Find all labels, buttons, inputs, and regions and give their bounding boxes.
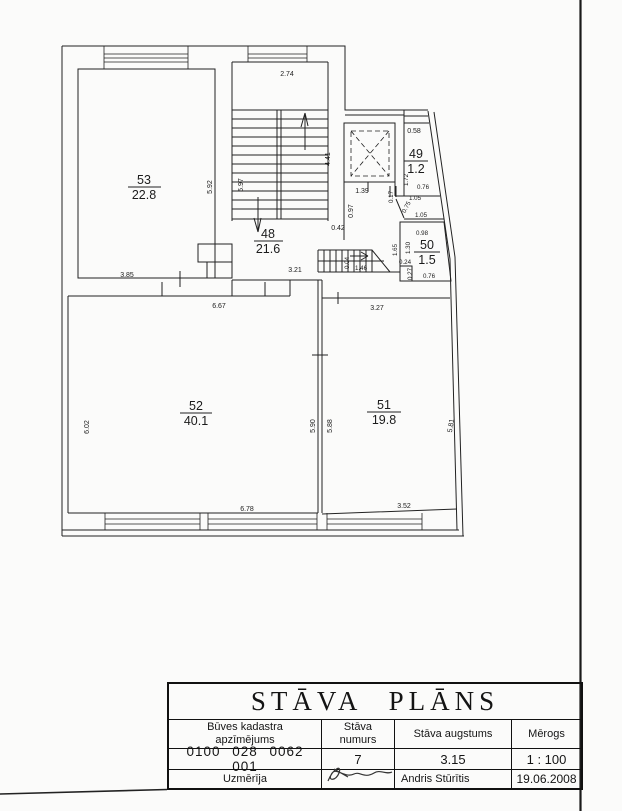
dim-room52-bottom: 6.78 xyxy=(240,506,254,513)
dim-lobby-105b: 1.05 xyxy=(415,212,428,219)
dim-room51-left: 5.88 xyxy=(327,419,334,433)
dim-048-042: 0.42 xyxy=(331,225,345,232)
signature-cell xyxy=(321,769,394,788)
dim-room49-width: 0.58 xyxy=(407,128,421,135)
bottom-windows xyxy=(105,513,422,530)
dim-room49-076: 0.76 xyxy=(417,184,430,191)
room-48-area: 21.6 xyxy=(256,242,280,256)
room-48-number: 48 xyxy=(261,227,275,241)
room-50-number: 50 xyxy=(420,238,434,252)
dim-elevator-width: 1.39 xyxy=(355,188,369,195)
survey-date: 19.06.2008 xyxy=(511,769,581,788)
dim-lobby-105a: 1.05 xyxy=(409,195,422,202)
dim-room52-left: 6.02 xyxy=(84,420,91,434)
dim-room53-height: 5.92 xyxy=(207,180,214,194)
surveyor-name: Andris Stūrītis xyxy=(394,769,511,788)
dim-room52-right: 5.90 xyxy=(310,419,317,433)
staircase xyxy=(232,62,328,232)
header-scale: Mērogs xyxy=(511,719,581,748)
room-52-number: 52 xyxy=(189,399,203,413)
floor-height-value: 3.15 xyxy=(394,748,511,769)
signature-scrawl xyxy=(314,755,398,791)
small-stair-arrow xyxy=(350,252,368,260)
dim-room50-024: 0.24 xyxy=(399,259,412,266)
elevator-shaft xyxy=(344,123,404,240)
room-51-number: 51 xyxy=(377,398,391,412)
stair-down-arrow xyxy=(254,197,261,232)
dim-room52-top: 6.67 xyxy=(212,303,226,310)
dim-room50-076: 0.76 xyxy=(423,273,436,280)
dim-stair-left: 5.97 xyxy=(238,178,245,192)
dim-stair-right: 4.41 xyxy=(325,152,332,166)
room-49-number: 49 xyxy=(409,147,423,161)
header-floor-height: Stāva augstums xyxy=(394,719,511,748)
dim-room48-width: 3.21 xyxy=(288,267,302,274)
room-49-area: 1.2 xyxy=(407,162,424,176)
drawing-title: STĀVA PLĀNS xyxy=(169,684,581,719)
room-52-51-outline xyxy=(68,280,457,514)
title-block: STĀVA PLĀNS Būves kadastra apzīmējums St… xyxy=(167,682,583,790)
dim-room53-width: 3.85 xyxy=(120,272,134,279)
dim-room49-height: 1.72 xyxy=(403,173,410,186)
dim-lobby-097: 0.97 xyxy=(348,204,355,218)
surveyor-label: Uzmērīja xyxy=(169,769,321,788)
dim-room51-top: 3.27 xyxy=(370,305,384,312)
room-48-walls xyxy=(68,280,322,296)
room-50-area: 1.5 xyxy=(418,253,435,267)
dim-smallstair-004: 0.04 xyxy=(344,256,351,269)
dim-lobby-075: 0.75 xyxy=(401,200,413,214)
top-windows xyxy=(104,46,307,69)
room-52-area: 40.1 xyxy=(184,414,208,428)
dim-room50-width: 0.98 xyxy=(416,230,429,237)
header-floor-number: Stāva numurs xyxy=(321,719,394,748)
scanned-page: 53 22.8 48 21.6 49 1.2 50 1.5 52 40.1 51… xyxy=(0,0,622,811)
dim-room51-bottom: 3.52 xyxy=(397,503,411,510)
dim-room50-165: 1.65 xyxy=(392,243,399,256)
dim-room50-027: 0.27 xyxy=(407,267,414,280)
room-51-area: 19.8 xyxy=(372,413,396,427)
dim-room50-130: 1.30 xyxy=(405,241,412,254)
room-53-area: 22.8 xyxy=(132,188,156,202)
dim-smallstair-146: 1.46 xyxy=(355,265,368,272)
scale-value: 1 : 100 xyxy=(511,748,581,769)
room-53-outline xyxy=(78,69,232,287)
room-53-number: 53 xyxy=(137,173,151,187)
dim-wall-017: 0.17 xyxy=(388,190,395,203)
cadastre-value: 0100 028 0062 001 xyxy=(169,748,321,769)
dim-landing-width: 2.74 xyxy=(280,71,294,78)
